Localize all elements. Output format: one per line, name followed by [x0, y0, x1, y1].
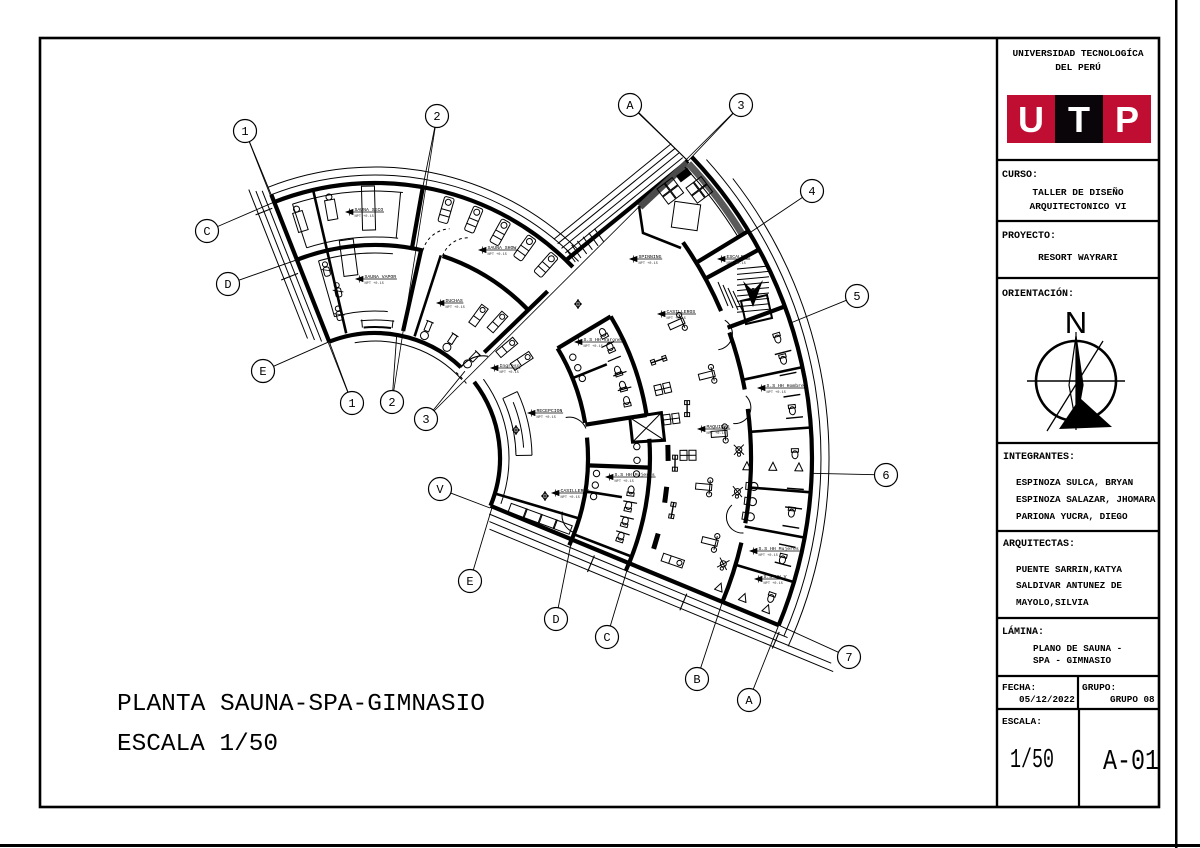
svg-text:PLANTA SAUNA-SPA-GIMNASIO: PLANTA SAUNA-SPA-GIMNASIO: [117, 691, 485, 718]
svg-text:NPT +0.15: NPT +0.15: [446, 306, 465, 310]
svg-text:SALDIVAR ANTUNEZ DE: SALDIVAR ANTUNEZ DE: [1016, 580, 1122, 591]
svg-text:6: 6: [882, 469, 889, 483]
svg-text:C: C: [203, 225, 210, 239]
svg-text:NPT +0.15: NPT +0.15: [707, 432, 726, 436]
svg-text:UNIVERSIDAD TECNOLOGÍCA: UNIVERSIDAD TECNOLOGÍCA: [1012, 48, 1143, 59]
svg-text:ORIENTACIÓN:: ORIENTACIÓN:: [1002, 286, 1074, 300]
svg-text:LÁMINA:: LÁMINA:: [1002, 624, 1044, 638]
svg-text:5: 5: [853, 290, 860, 304]
svg-text:NPT +0.15: NPT +0.15: [500, 371, 519, 375]
svg-text:NPT +0.15: NPT +0.15: [727, 262, 746, 266]
svg-text:TALLER DE DISEÑO: TALLER DE DISEÑO: [1032, 187, 1124, 198]
svg-text:SPINNING: SPINNING: [639, 254, 662, 260]
svg-text:ESPINOZA SALAZAR, JHOMARA: ESPINOZA SALAZAR, JHOMARA: [1016, 494, 1156, 505]
svg-text:S.S HH Hombres: S.S HH Hombres: [767, 383, 807, 389]
svg-text:A-01: A-01: [1103, 745, 1159, 778]
svg-text:T: T: [1068, 99, 1090, 140]
svg-text:SAUNA SECO: SAUNA SECO: [355, 207, 384, 213]
svg-text:CASILLEROS: CASILLEROS: [667, 309, 696, 315]
svg-text:NPT +0.15: NPT +0.15: [764, 582, 783, 586]
svg-text:PUENTE SARRIN,KATYA: PUENTE SARRIN,KATYA: [1016, 564, 1122, 575]
svg-text:INTEGRANTES:: INTEGRANTES:: [1003, 452, 1075, 463]
svg-text:NPT +0.15: NPT +0.15: [759, 554, 778, 558]
svg-text:MAQUINAS: MAQUINAS: [707, 424, 730, 430]
svg-text:A: A: [626, 99, 634, 113]
svg-text:NPT +0.15: NPT +0.15: [767, 391, 786, 395]
svg-text:05/12/2022: 05/12/2022: [1019, 694, 1075, 705]
svg-text:ESCALERA: ESCALERA: [727, 254, 750, 260]
svg-text:GRUPO:: GRUPO:: [1082, 682, 1116, 693]
svg-text:DEL PERÚ: DEL PERÚ: [1055, 62, 1101, 73]
svg-text:S.S HH Mujeres: S.S HH Mujeres: [615, 472, 655, 478]
svg-text:FECHA:: FECHA:: [1002, 682, 1036, 693]
svg-text:NPT +0.15: NPT +0.15: [561, 496, 580, 500]
svg-text:U: U: [1018, 99, 1044, 140]
svg-text:NPT +0.15: NPT +0.15: [488, 253, 507, 257]
svg-text:V: V: [436, 483, 444, 497]
svg-text:ESPINOZA SULCA, BRYAN: ESPINOZA SULCA, BRYAN: [1016, 477, 1133, 488]
svg-text:S.S HH V: S.S HH V: [764, 574, 787, 580]
svg-text:PARIONA YUCRA, DIEGO: PARIONA YUCRA, DIEGO: [1016, 511, 1128, 522]
svg-text:NPT +0.15: NPT +0.15: [667, 317, 686, 321]
svg-text:E: E: [259, 365, 266, 379]
svg-text:7: 7: [845, 651, 852, 665]
svg-text:D: D: [552, 613, 559, 627]
svg-text:SPA - GIMNASIO: SPA - GIMNASIO: [1033, 655, 1112, 666]
svg-text:NPT +0.15: NPT +0.15: [615, 480, 634, 484]
svg-text:ARQUITECTAS:: ARQUITECTAS:: [1003, 539, 1075, 550]
svg-text:4: 4: [808, 185, 815, 199]
svg-text:P: P: [1115, 99, 1139, 140]
svg-text:1: 1: [348, 397, 355, 411]
svg-text:CASILLEROS: CASILLEROS: [561, 488, 590, 494]
svg-text:1/50: 1/50: [1010, 746, 1054, 776]
svg-text:3: 3: [422, 413, 429, 427]
svg-text:2: 2: [433, 110, 440, 124]
svg-text:MAYOLO,SILVIA: MAYOLO,SILVIA: [1016, 597, 1089, 608]
svg-text:SAUNA SHOW: SAUNA SHOW: [488, 245, 517, 251]
svg-text:NPT +0.15: NPT +0.15: [584, 345, 603, 349]
svg-text:3: 3: [737, 99, 744, 113]
svg-text:ESCALA:: ESCALA:: [1002, 716, 1042, 727]
svg-text:A: A: [745, 694, 753, 708]
svg-text:PLANO DE SAUNA -: PLANO DE SAUNA -: [1033, 643, 1122, 654]
svg-text:ESCALA 1/50: ESCALA 1/50: [117, 731, 278, 758]
svg-text:C: C: [603, 631, 610, 645]
svg-text:PROYECTO:: PROYECTO:: [1002, 231, 1056, 242]
svg-text:2: 2: [388, 396, 395, 410]
svg-text:S.S HH Mujeres: S.S HH Mujeres: [759, 546, 799, 552]
svg-text:S.S HH Varones: S.S HH Varones: [584, 337, 624, 343]
svg-text:B: B: [693, 673, 700, 687]
svg-text:NPT +0.15: NPT +0.15: [639, 262, 658, 266]
svg-text:NPT +0.15: NPT +0.15: [365, 282, 384, 286]
svg-text:D: D: [224, 278, 231, 292]
svg-text:E: E: [466, 575, 473, 589]
svg-text:GRUPO 08: GRUPO 08: [1110, 694, 1155, 705]
svg-text:1: 1: [241, 125, 248, 139]
svg-text:NPT +0.15: NPT +0.15: [537, 416, 556, 420]
svg-text:Ingreso: Ingreso: [500, 363, 520, 369]
svg-text:NPT +0.15: NPT +0.15: [355, 215, 374, 219]
svg-text:CURSO:: CURSO:: [1002, 170, 1038, 181]
svg-text:SAUNA VAPOR: SAUNA VAPOR: [365, 274, 397, 280]
svg-text:ARQUITECTONICO VI: ARQUITECTONICO VI: [1030, 201, 1127, 212]
svg-text:RECEPCION: RECEPCION: [537, 408, 563, 414]
svg-text:RESORT WAYRARI: RESORT WAYRARI: [1038, 252, 1118, 263]
svg-text:DUCHAS: DUCHAS: [446, 298, 463, 304]
